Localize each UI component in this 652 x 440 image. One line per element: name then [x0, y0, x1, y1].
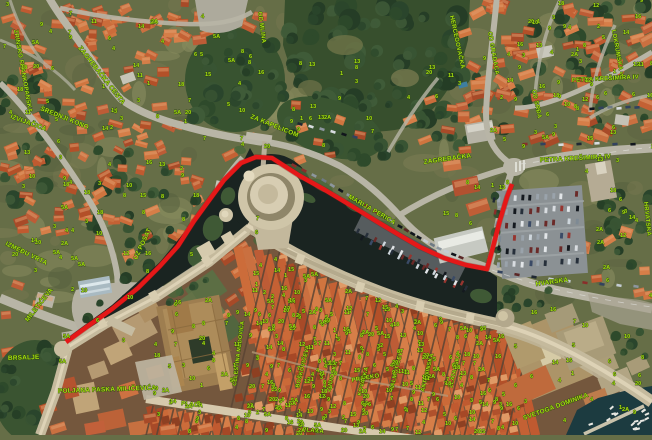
svg-text:16: 16 [289, 298, 295, 304]
svg-text:18: 18 [17, 87, 23, 93]
svg-text:9: 9 [236, 310, 239, 316]
svg-text:5A: 5A [325, 298, 332, 304]
svg-text:20: 20 [474, 429, 480, 435]
svg-text:7: 7 [297, 366, 300, 372]
svg-text:20: 20 [33, 64, 39, 70]
svg-text:10: 10 [532, 20, 538, 26]
svg-text:13: 13 [400, 333, 406, 339]
svg-text:11: 11 [234, 342, 240, 348]
svg-text:10: 10 [564, 102, 570, 108]
svg-text:8: 8 [188, 429, 191, 435]
svg-text:15: 15 [443, 211, 449, 217]
svg-text:14: 14 [266, 345, 273, 351]
svg-text:8: 8 [574, 104, 577, 110]
svg-text:20: 20 [199, 336, 205, 342]
svg-text:8: 8 [197, 401, 200, 407]
svg-text:2A: 2A [247, 404, 254, 410]
svg-text:9: 9 [320, 407, 323, 413]
svg-text:7: 7 [69, 11, 72, 17]
svg-text:13: 13 [159, 162, 165, 168]
svg-text:15: 15 [253, 271, 259, 277]
svg-text:6: 6 [108, 36, 111, 42]
svg-text:6: 6 [596, 95, 599, 101]
svg-text:3: 3 [470, 398, 473, 404]
svg-text:18: 18 [84, 190, 90, 196]
svg-text:5: 5 [572, 343, 575, 349]
svg-text:16: 16 [495, 354, 501, 360]
svg-text:6: 6 [57, 139, 60, 145]
svg-text:11: 11 [25, 110, 31, 116]
svg-text:3: 3 [137, 98, 140, 104]
svg-text:6: 6 [307, 394, 310, 400]
svg-text:3: 3 [198, 410, 201, 416]
svg-text:16: 16 [146, 160, 152, 166]
svg-text:3: 3 [271, 385, 274, 391]
svg-text:8: 8 [161, 194, 164, 200]
svg-text:10: 10 [366, 116, 372, 122]
svg-text:3: 3 [328, 409, 331, 415]
svg-text:8: 8 [123, 193, 126, 199]
svg-text:9: 9 [270, 364, 273, 370]
svg-text:3: 3 [355, 79, 358, 85]
svg-text:10: 10 [126, 183, 132, 189]
svg-text:9: 9 [514, 97, 517, 103]
svg-text:10: 10 [189, 376, 195, 382]
svg-text:5A: 5A [63, 334, 70, 340]
svg-text:6: 6 [638, 373, 641, 379]
svg-text:8: 8 [202, 321, 205, 327]
svg-text:5A: 5A [228, 58, 235, 64]
svg-text:8: 8 [282, 347, 285, 353]
svg-text:7: 7 [313, 337, 316, 343]
svg-text:16: 16 [647, 93, 652, 99]
svg-text:2A: 2A [359, 429, 366, 435]
svg-text:16: 16 [498, 334, 504, 340]
svg-text:11: 11 [285, 403, 291, 409]
svg-text:7: 7 [277, 363, 280, 369]
svg-text:7: 7 [462, 361, 465, 367]
svg-text:3: 3 [554, 124, 557, 130]
svg-text:BRSALJE: BRSALJE [8, 354, 40, 362]
svg-text:3: 3 [458, 81, 461, 87]
svg-text:7: 7 [240, 136, 243, 142]
svg-text:3: 3 [157, 412, 160, 418]
svg-text:2A: 2A [622, 407, 629, 413]
svg-text:6: 6 [546, 112, 549, 118]
svg-text:13: 13 [610, 130, 616, 136]
svg-text:5A: 5A [433, 367, 440, 373]
svg-text:1: 1 [102, 84, 105, 90]
svg-text:3: 3 [6, 2, 9, 8]
svg-text:11: 11 [252, 288, 258, 294]
svg-text:5A: 5A [213, 34, 220, 40]
svg-text:5: 5 [279, 399, 282, 405]
svg-text:12: 12 [346, 306, 352, 312]
svg-text:6: 6 [268, 313, 271, 319]
svg-text:10: 10 [402, 382, 408, 388]
svg-text:8: 8 [322, 416, 325, 422]
svg-text:16: 16 [531, 310, 537, 316]
svg-text:2A: 2A [603, 265, 610, 271]
svg-text:8: 8 [299, 61, 302, 67]
svg-text:6: 6 [175, 312, 178, 318]
svg-text:5A: 5A [289, 324, 296, 330]
svg-text:5: 5 [514, 344, 517, 350]
svg-text:6: 6 [530, 374, 533, 380]
svg-text:3: 3 [304, 278, 307, 284]
svg-text:2: 2 [71, 287, 74, 293]
svg-text:8: 8 [292, 313, 295, 319]
svg-text:12: 12 [299, 342, 305, 348]
svg-text:11: 11 [137, 73, 143, 79]
svg-text:6: 6 [452, 363, 455, 369]
svg-text:7: 7 [390, 396, 393, 402]
svg-text:14: 14 [133, 63, 140, 69]
svg-text:20: 20 [392, 360, 398, 366]
svg-text:6: 6 [514, 383, 517, 389]
svg-text:2: 2 [110, 125, 113, 131]
svg-text:14: 14 [379, 429, 386, 435]
svg-text:6: 6 [464, 334, 467, 340]
svg-text:13: 13 [24, 150, 30, 156]
svg-text:3: 3 [377, 344, 380, 350]
svg-text:13: 13 [354, 59, 360, 65]
svg-text:1: 1 [200, 383, 203, 389]
svg-text:6: 6 [371, 425, 374, 431]
svg-text:2: 2 [296, 313, 299, 319]
svg-text:8: 8 [227, 313, 230, 319]
svg-text:13: 13 [429, 65, 435, 71]
svg-text:3: 3 [22, 184, 25, 190]
svg-text:3: 3 [120, 116, 123, 122]
svg-text:14: 14 [31, 238, 38, 244]
svg-text:12: 12 [582, 97, 588, 103]
svg-text:9: 9 [432, 392, 435, 398]
svg-text:9: 9 [249, 333, 252, 339]
svg-text:13: 13 [307, 409, 313, 415]
svg-text:3: 3 [319, 308, 322, 314]
svg-text:16: 16 [566, 358, 572, 364]
svg-text:1: 1 [184, 119, 187, 125]
svg-text:11: 11 [638, 62, 644, 68]
svg-text:9: 9 [552, 132, 555, 138]
svg-text:6: 6 [604, 91, 607, 97]
svg-text:14: 14 [138, 24, 145, 30]
svg-text:5: 5 [433, 357, 436, 363]
svg-text:5A: 5A [311, 272, 318, 278]
svg-text:9: 9 [548, 26, 551, 32]
svg-text:3: 3 [182, 363, 185, 369]
svg-text:9: 9 [312, 384, 315, 390]
svg-text:15: 15 [140, 193, 146, 199]
svg-text:18: 18 [393, 322, 399, 328]
svg-text:16: 16 [258, 70, 264, 76]
svg-text:5: 5 [200, 52, 203, 58]
svg-text:7: 7 [427, 397, 430, 403]
svg-text:12: 12 [304, 379, 310, 385]
svg-text:9: 9 [590, 82, 593, 88]
svg-text:9: 9 [493, 400, 496, 406]
svg-text:6: 6 [613, 372, 616, 378]
svg-text:8: 8 [442, 372, 445, 378]
svg-text:14: 14 [485, 335, 492, 341]
svg-text:1: 1 [233, 363, 236, 369]
svg-text:1: 1 [571, 371, 574, 377]
svg-text:9: 9 [297, 127, 300, 133]
svg-text:18: 18 [321, 389, 327, 395]
svg-text:18: 18 [193, 193, 199, 199]
svg-text:16: 16 [517, 42, 523, 48]
svg-text:7: 7 [203, 136, 206, 142]
svg-text:6: 6 [619, 197, 622, 203]
svg-text:2: 2 [597, 24, 600, 30]
svg-text:2A: 2A [362, 330, 369, 336]
svg-text:8: 8 [412, 366, 415, 372]
svg-text:18: 18 [21, 65, 27, 71]
svg-text:7: 7 [318, 341, 321, 347]
svg-text:12: 12 [620, 233, 626, 239]
svg-text:9: 9 [246, 363, 249, 369]
svg-text:6: 6 [174, 302, 177, 308]
svg-text:14: 14 [474, 185, 481, 191]
svg-text:7: 7 [446, 377, 449, 383]
svg-text:13: 13 [310, 104, 316, 110]
svg-text:6: 6 [606, 278, 609, 284]
svg-text:7: 7 [256, 216, 259, 222]
svg-text:14: 14 [244, 312, 251, 318]
svg-text:6: 6 [469, 221, 472, 227]
svg-text:8: 8 [497, 426, 500, 432]
svg-text:14: 14 [482, 402, 489, 408]
svg-text:16: 16 [281, 286, 287, 292]
svg-text:5: 5 [230, 378, 233, 384]
svg-text:14: 14 [552, 360, 559, 366]
svg-text:10: 10 [582, 323, 588, 329]
svg-text:20: 20 [363, 394, 369, 400]
svg-text:5: 5 [602, 35, 605, 41]
svg-text:12: 12 [375, 298, 381, 304]
svg-text:16: 16 [550, 307, 556, 313]
svg-text:11: 11 [324, 341, 330, 347]
svg-text:7: 7 [361, 349, 364, 355]
svg-text:12: 12 [415, 430, 421, 435]
svg-text:8: 8 [292, 107, 295, 113]
svg-text:5: 5 [443, 412, 446, 418]
svg-text:8: 8 [156, 114, 159, 120]
svg-text:7: 7 [344, 419, 347, 425]
svg-text:1: 1 [491, 183, 494, 189]
svg-text:18: 18 [97, 210, 103, 216]
svg-text:7: 7 [339, 361, 342, 367]
svg-text:8: 8 [182, 217, 185, 223]
svg-text:2A: 2A [205, 298, 212, 304]
svg-text:9: 9 [563, 24, 566, 30]
svg-text:20: 20 [341, 428, 347, 434]
svg-text:3: 3 [333, 352, 336, 358]
svg-text:10: 10 [294, 290, 300, 296]
svg-text:13: 13 [309, 62, 315, 68]
svg-text:20: 20 [264, 144, 270, 150]
svg-text:2A: 2A [490, 128, 497, 134]
svg-text:10: 10 [386, 388, 392, 394]
svg-text:8: 8 [323, 380, 326, 386]
svg-text:9: 9 [500, 406, 503, 412]
svg-text:6: 6 [249, 54, 252, 60]
svg-text:8: 8 [397, 349, 400, 355]
svg-text:7: 7 [174, 342, 177, 348]
svg-text:2A: 2A [324, 115, 331, 121]
svg-text:10: 10 [454, 395, 460, 401]
svg-text:2A: 2A [571, 52, 578, 58]
svg-text:5: 5 [46, 99, 49, 105]
svg-text:8: 8 [641, 355, 644, 361]
svg-text:6: 6 [288, 368, 291, 374]
svg-text:9: 9 [181, 173, 184, 179]
svg-text:8: 8 [343, 401, 346, 407]
svg-text:9: 9 [622, 210, 625, 216]
svg-text:6: 6 [608, 208, 611, 214]
svg-text:2A: 2A [298, 428, 305, 434]
svg-text:13: 13 [418, 342, 424, 348]
svg-text:1: 1 [284, 273, 287, 279]
svg-text:3: 3 [616, 158, 619, 164]
svg-text:13: 13 [597, 157, 603, 163]
svg-text:2: 2 [256, 410, 259, 416]
svg-text:13: 13 [262, 319, 268, 325]
svg-text:5: 5 [503, 137, 506, 143]
svg-text:14: 14 [469, 417, 476, 423]
svg-text:7: 7 [261, 384, 264, 390]
svg-text:5: 5 [325, 315, 328, 321]
svg-text:9: 9 [171, 329, 174, 335]
svg-text:1: 1 [619, 405, 622, 411]
svg-text:8: 8 [212, 358, 215, 364]
svg-text:8: 8 [358, 355, 361, 361]
svg-text:5: 5 [383, 352, 386, 358]
svg-text:1: 1 [340, 71, 343, 77]
svg-text:8: 8 [146, 269, 149, 275]
svg-text:3: 3 [34, 268, 37, 274]
svg-text:6: 6 [488, 388, 491, 394]
svg-text:8: 8 [506, 180, 509, 186]
svg-text:14: 14 [623, 30, 630, 36]
svg-text:11: 11 [404, 370, 410, 376]
svg-text:8: 8 [583, 43, 586, 49]
svg-text:9: 9 [155, 386, 158, 392]
svg-text:1: 1 [255, 282, 258, 288]
svg-text:8: 8 [334, 371, 337, 377]
svg-text:1: 1 [147, 81, 150, 87]
svg-text:11: 11 [424, 376, 430, 382]
svg-text:9: 9 [40, 22, 43, 28]
svg-text:9: 9 [254, 308, 257, 314]
svg-text:10: 10 [127, 295, 133, 301]
svg-text:8: 8 [455, 213, 458, 219]
svg-text:20: 20 [635, 381, 641, 387]
svg-text:16: 16 [145, 251, 151, 257]
svg-text:8: 8 [466, 180, 469, 186]
svg-text:7: 7 [225, 321, 228, 327]
svg-text:9: 9 [522, 144, 525, 150]
svg-text:5A: 5A [267, 299, 274, 305]
svg-text:3: 3 [522, 53, 525, 59]
svg-text:3: 3 [256, 356, 259, 362]
svg-text:3: 3 [85, 219, 88, 225]
svg-text:10: 10 [81, 288, 87, 294]
svg-text:2A: 2A [476, 341, 483, 347]
svg-text:20: 20 [12, 252, 18, 258]
svg-text:9: 9 [327, 397, 330, 403]
svg-text:9: 9 [633, 410, 636, 416]
svg-text:18: 18 [63, 182, 69, 188]
svg-text:2: 2 [263, 290, 266, 296]
svg-text:7: 7 [365, 296, 368, 302]
svg-text:8: 8 [410, 397, 413, 403]
svg-text:9: 9 [338, 96, 341, 102]
svg-text:13: 13 [536, 43, 542, 49]
svg-text:7: 7 [188, 98, 191, 104]
svg-text:2A: 2A [221, 372, 228, 378]
svg-text:6: 6 [434, 323, 437, 329]
svg-text:18: 18 [553, 93, 559, 99]
svg-text:9: 9 [392, 370, 395, 376]
svg-text:2A: 2A [478, 367, 485, 373]
svg-text:2A: 2A [414, 320, 421, 326]
svg-text:10: 10 [469, 410, 475, 416]
svg-text:6: 6 [255, 230, 258, 236]
svg-text:1: 1 [335, 334, 338, 340]
svg-text:7: 7 [487, 378, 490, 384]
svg-text:20: 20 [249, 384, 255, 390]
svg-text:13: 13 [499, 185, 505, 191]
svg-text:8: 8 [245, 419, 248, 425]
svg-text:8: 8 [318, 359, 321, 365]
svg-text:8: 8 [470, 375, 473, 381]
svg-text:8: 8 [322, 143, 325, 149]
svg-text:7: 7 [573, 319, 576, 325]
svg-text:8: 8 [313, 325, 316, 331]
svg-text:8: 8 [237, 416, 240, 422]
svg-text:6: 6 [436, 397, 439, 403]
svg-text:7: 7 [68, 30, 71, 36]
svg-text:6: 6 [51, 66, 54, 72]
svg-text:9: 9 [278, 388, 281, 394]
svg-text:3: 3 [524, 399, 527, 405]
svg-text:18: 18 [178, 82, 184, 88]
svg-text:9: 9 [480, 327, 483, 333]
svg-text:1: 1 [300, 116, 303, 122]
svg-text:10: 10 [473, 354, 479, 360]
svg-text:5: 5 [55, 117, 58, 123]
svg-text:5A: 5A [542, 135, 549, 141]
svg-text:5A: 5A [264, 412, 271, 418]
svg-text:7: 7 [366, 312, 369, 318]
svg-text:9: 9 [640, 0, 643, 4]
svg-text:5: 5 [302, 309, 305, 315]
svg-text:15: 15 [382, 305, 388, 311]
svg-text:3: 3 [53, 224, 56, 230]
svg-text:3: 3 [401, 309, 404, 315]
svg-text:9: 9 [315, 428, 318, 434]
svg-text:10: 10 [29, 174, 35, 180]
svg-text:9: 9 [196, 416, 199, 422]
svg-text:9: 9 [483, 56, 486, 62]
svg-text:18: 18 [154, 353, 160, 359]
svg-text:14: 14 [102, 126, 109, 132]
svg-text:2A: 2A [61, 241, 68, 247]
svg-text:18: 18 [558, 1, 564, 7]
svg-text:5A: 5A [53, 250, 60, 256]
